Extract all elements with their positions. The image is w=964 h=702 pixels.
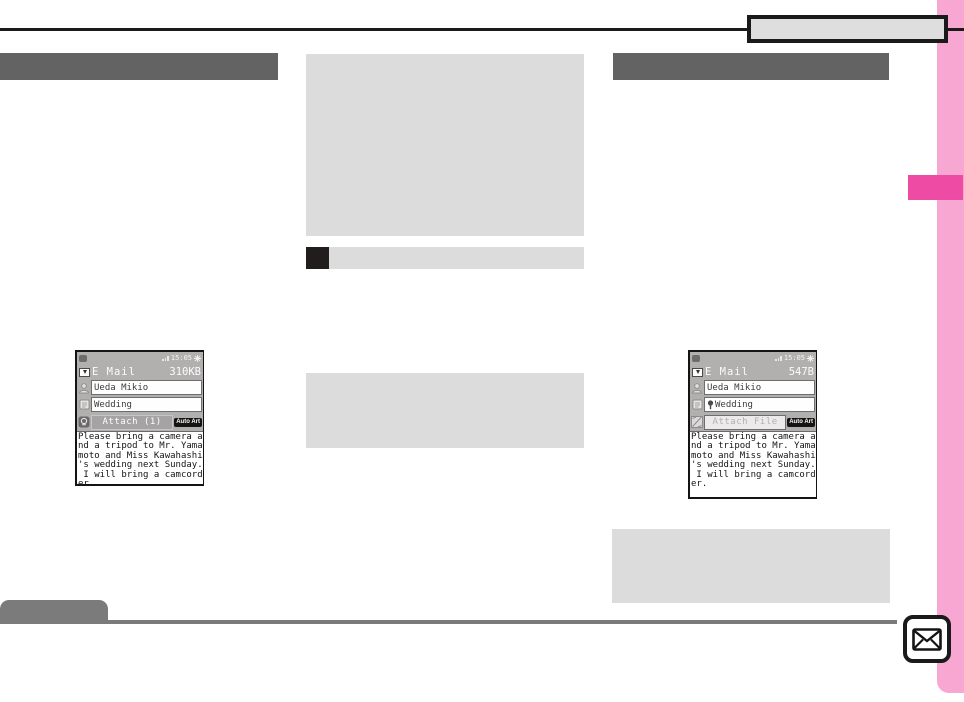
footer-divider (0, 620, 897, 624)
to-value: Ueda Mikio (94, 382, 148, 394)
mail-title-row: E Mail 547B (690, 365, 816, 379)
subject-value: Wedding (715, 399, 753, 411)
clock-time: 15:05 (784, 355, 805, 362)
middle-subsection-header (306, 247, 584, 269)
middle-note-panel (306, 54, 584, 236)
to-field: Ueda Mikio (91, 380, 202, 395)
subject-field: Wedding (91, 397, 202, 412)
middle-note-panel-2 (306, 373, 584, 448)
subject-row: Wedding (77, 396, 203, 413)
manual-page: 15:05 E Mail 310KB Ueda Mikio (0, 0, 964, 702)
clock-time: 15:05 (171, 355, 192, 362)
right-section-heading-bar (613, 53, 889, 80)
chapter-index-tab (908, 175, 963, 200)
mail-chapter-button (903, 615, 951, 663)
mail-size: 547B (789, 366, 814, 378)
attach-row: Attach File Auto Art (690, 413, 816, 431)
to-value: Ueda Mikio (707, 382, 761, 394)
mail-body-text: Please bring a camera a nd a tripod to M… (690, 431, 816, 497)
mail-title: E Mail (705, 366, 787, 378)
attach-icon (78, 416, 90, 428)
to-row: Ueda Mikio (77, 379, 203, 396)
sparkle-icon (194, 355, 201, 362)
mail-title-row: E Mail 310KB (77, 365, 203, 379)
page-header-tab (747, 15, 948, 43)
mail-title: E Mail (92, 366, 167, 378)
to-row: Ueda Mikio (690, 379, 816, 396)
subject-row: Wedding (690, 396, 816, 413)
left-section-heading-bar (0, 53, 278, 80)
subsection-header-bar (329, 247, 584, 269)
mail-type-selector-icon (79, 368, 90, 377)
to-person-icon (78, 382, 90, 394)
to-field: Ueda Mikio (704, 380, 815, 395)
envelope-icon (912, 628, 942, 651)
auto-art-badge: Auto Art (787, 418, 815, 427)
attach-row: Attach (1) Auto Art (77, 413, 203, 431)
subject-value: Wedding (94, 399, 132, 411)
attach-button: Attach (1) (91, 415, 173, 430)
attach-field: Attach File (704, 415, 786, 430)
mail-body-text: Please bring a camera a nd a tripod to M… (77, 431, 203, 484)
subject-doc-icon (691, 399, 703, 411)
compose-screen-attach-empty: 15:05 E Mail 547B Ueda Mikio (688, 350, 817, 499)
mail-type-selector-icon (692, 368, 703, 377)
status-bar: 15:05 (690, 352, 816, 365)
subject-field: Wedding (704, 397, 815, 412)
footer-section-tab (0, 600, 108, 622)
sparkle-icon (807, 355, 814, 362)
compose-screen-with-attachment: 15:05 E Mail 310KB Ueda Mikio (75, 350, 204, 486)
mail-size: 310KB (169, 366, 201, 378)
subject-doc-icon (78, 399, 90, 411)
auto-art-badge: Auto Art (174, 418, 202, 427)
signal-icon (692, 355, 700, 362)
status-bar: 15:05 (77, 352, 203, 365)
antenna-icon (775, 356, 782, 361)
deco-pict-icon (707, 400, 714, 410)
signal-icon (79, 355, 87, 362)
attach-disabled-icon (691, 416, 703, 428)
subsection-bullet-square (306, 247, 329, 269)
to-person-icon (691, 382, 703, 394)
right-note-panel (612, 529, 890, 603)
antenna-icon (162, 356, 169, 361)
chapter-edge-bar (937, 0, 964, 693)
